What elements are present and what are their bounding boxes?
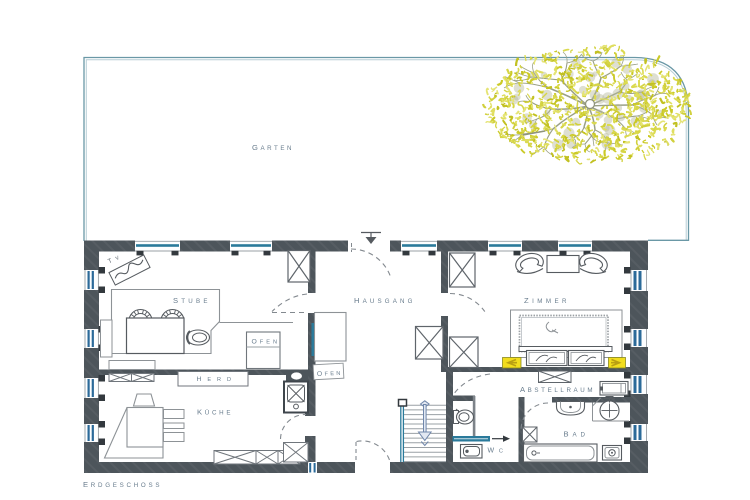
svg-text:GARTEN: GARTEN [252, 143, 293, 152]
svg-text:ERDGESCHOSS: ERDGESCHOSS [83, 480, 161, 489]
svg-text:ABSTELLRAUM: ABSTELLRAUM [520, 385, 594, 394]
svg-text:KÜCHE: KÜCHE [197, 408, 232, 417]
svg-text:BAD: BAD [564, 430, 587, 439]
svg-text:STUBE: STUBE [173, 296, 209, 305]
